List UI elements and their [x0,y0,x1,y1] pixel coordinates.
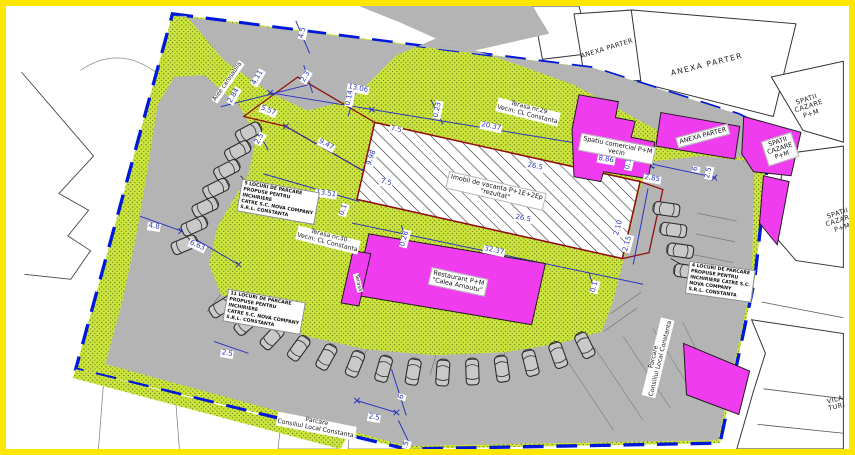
neighbor-building-vila [737,320,844,449]
car-icon [465,358,479,385]
site-plan-drawing [6,6,849,449]
building-spatii-cazare-magenta [742,117,801,176]
car-icon [436,358,451,386]
site-plan-sheet: 4.52.844.112.35.5713.060.1420.370.237.59… [0,0,855,455]
